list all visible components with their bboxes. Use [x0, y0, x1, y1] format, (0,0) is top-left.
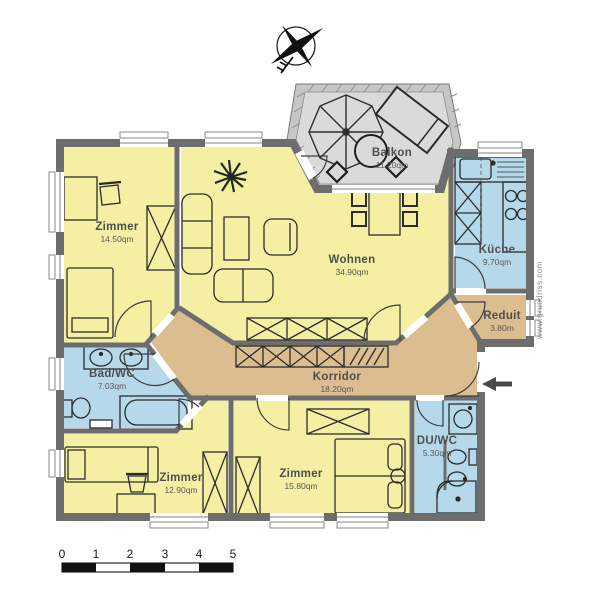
label-zimmer-nw: Zimmer: [95, 221, 139, 233]
floor-plan-svg: Balkon 11.20qm Zimmer 14.50qm Wohnen 34.…: [0, 0, 600, 600]
label-zimmer-s: Zimmer: [279, 468, 323, 480]
scale-segment-3: [130, 563, 165, 572]
room-fills: [63, 147, 530, 514]
label-reduit-area: 3.80m: [490, 323, 514, 333]
label-zimmer-sw: Zimmer: [159, 472, 203, 484]
label-zimmer-s-area: 15.80qm: [284, 481, 317, 491]
scale-segment-5: [199, 563, 233, 572]
label-balkon-area: 11.20qm: [376, 160, 408, 170]
label-reduit: Reduit: [483, 310, 521, 322]
scale-label-3: 3: [162, 547, 169, 561]
label-wohnen-area: 34.90qm: [335, 267, 368, 277]
label-balkon: Balkon: [372, 147, 412, 159]
label-zimmer-sw-area: 12.90qm: [164, 485, 197, 495]
label-du-wc-area: 5.30qm: [423, 448, 451, 458]
label-zimmer-nw-area: 14.50qm: [100, 234, 133, 244]
label-du-wc: DU/WC: [417, 435, 457, 447]
watermark: www.grundriss.com: [535, 261, 544, 340]
label-korridor-area: 18.20qm: [320, 384, 353, 394]
scale-label-2: 2: [127, 547, 134, 561]
entrance-arrow-icon: [482, 377, 512, 391]
scale-label-1: 1: [93, 547, 100, 561]
scale-label-0: 0: [59, 547, 66, 561]
scale-label-4: 4: [196, 547, 203, 561]
label-kueche: Küche: [479, 244, 516, 256]
compass-rose-icon: [271, 25, 323, 73]
room-kueche: [455, 153, 530, 288]
radiator-bad: [90, 420, 112, 428]
scale-segment-1: [62, 563, 96, 572]
scale-bar: 0 1 2 3 4 5: [59, 547, 237, 572]
label-korridor: Korridor: [313, 371, 362, 383]
scale-label-5: 5: [230, 547, 237, 561]
label-wohnen: Wohnen: [329, 254, 376, 266]
label-bad-wc-area: 7.03qm: [98, 381, 126, 391]
label-kueche-area: 9.70qm: [483, 257, 511, 267]
label-bad-wc: Bad/WC: [89, 368, 135, 380]
floor-plan-page: Balkon 11.20qm Zimmer 14.50qm Wohnen 34.…: [0, 0, 600, 600]
